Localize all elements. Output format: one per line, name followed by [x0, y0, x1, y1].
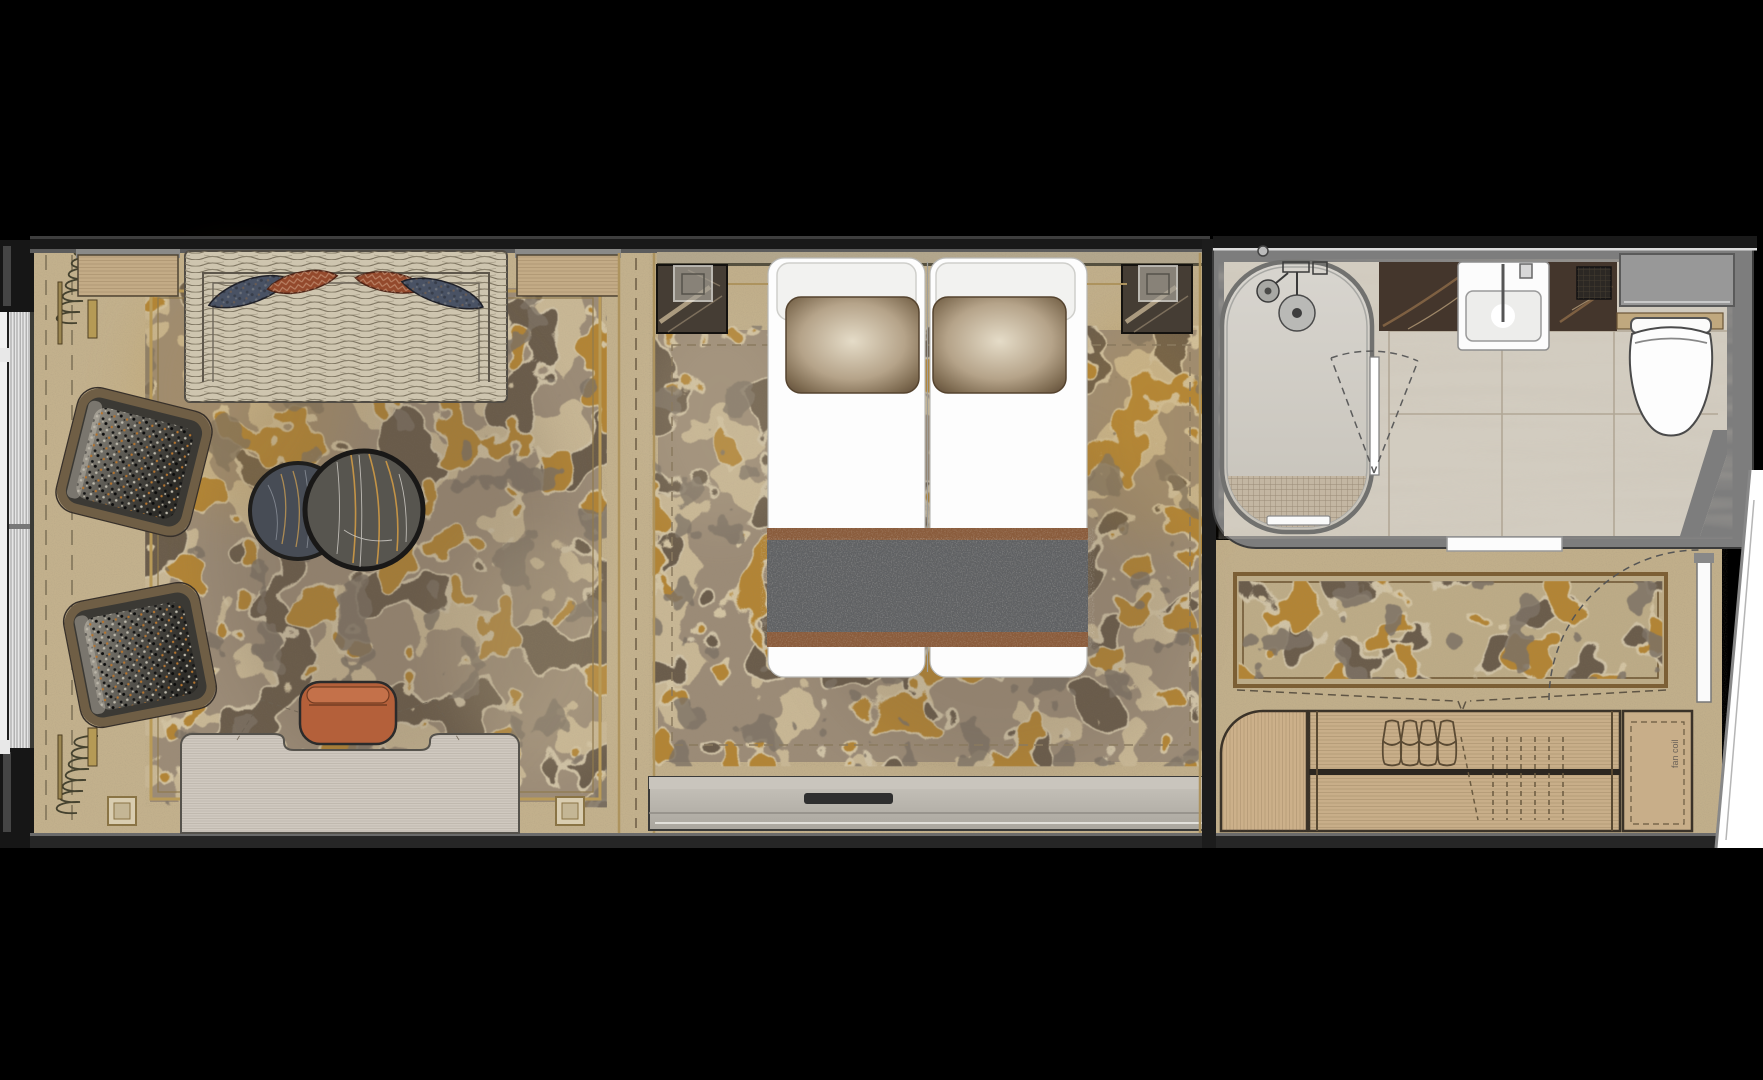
svg-text:fan coil: fan coil [1670, 739, 1680, 768]
